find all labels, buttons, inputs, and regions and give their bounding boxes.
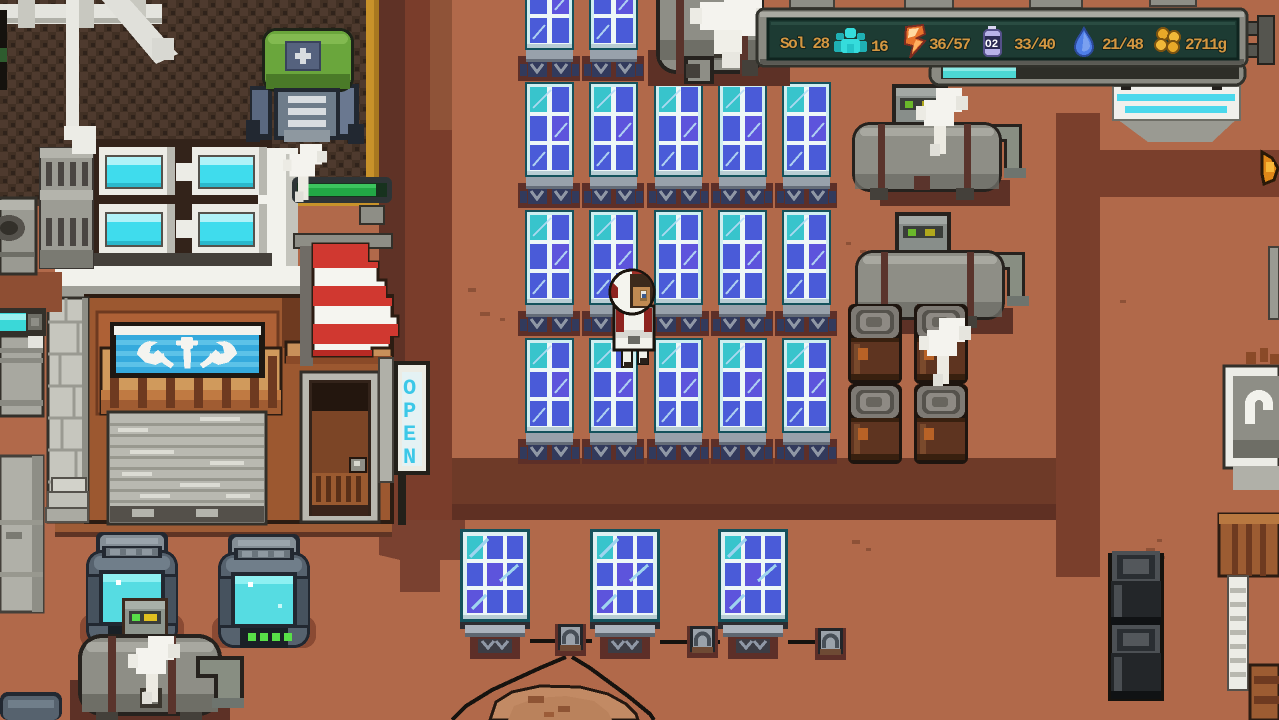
svg-text:36/57: 36/57 [929, 36, 970, 54]
svg-text:P: P [403, 399, 416, 424]
svg-text:O2: O2 [985, 39, 998, 51]
svg-text:21/48: 21/48 [1102, 36, 1143, 54]
svg-text:33/40: 33/40 [1014, 36, 1055, 54]
svg-text:Sol 28: Sol 28 [780, 35, 830, 53]
svg-text:E: E [403, 422, 416, 447]
svg-text:2711g: 2711g [1185, 36, 1226, 54]
svg-text:O: O [403, 376, 416, 401]
svg-text:N: N [403, 445, 416, 470]
svg-text:16: 16 [871, 38, 888, 56]
